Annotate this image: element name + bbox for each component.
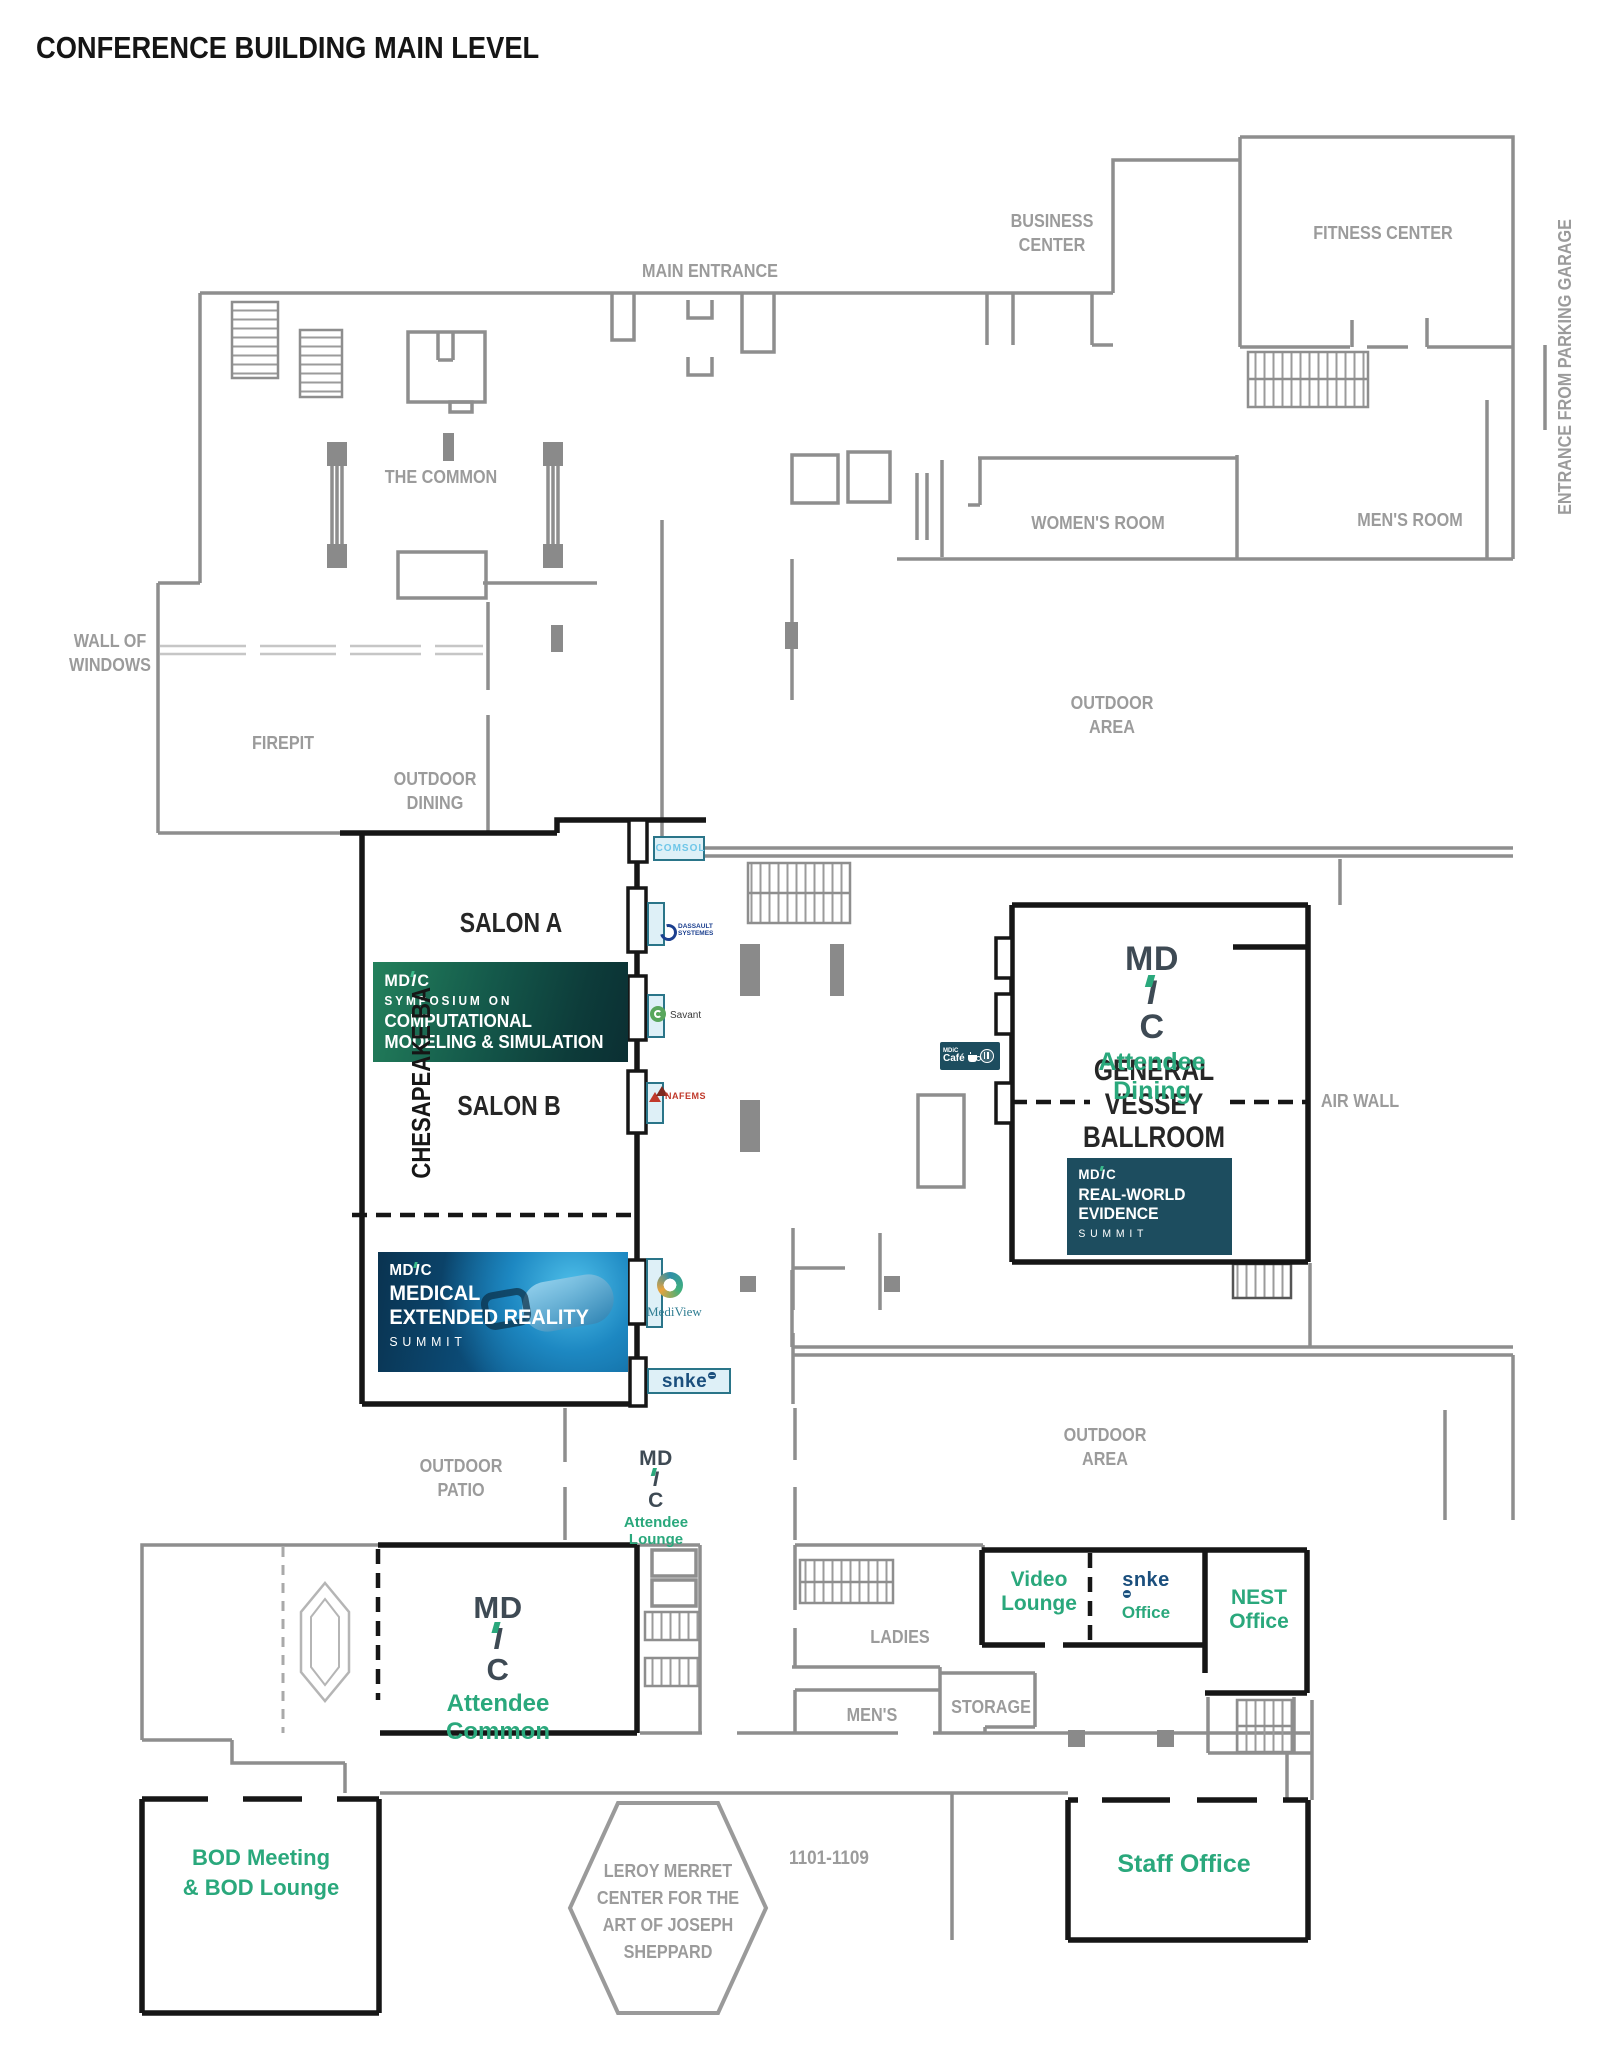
label-salon-a: SALON A bbox=[460, 905, 562, 942]
comsol-text: COMSOL bbox=[656, 843, 706, 854]
mxr-banner: MDIC MEDICAL EXTENDED REALITY SUMMIT bbox=[378, 1252, 628, 1372]
window-wall bbox=[160, 640, 483, 658]
coffee-cup-icon bbox=[968, 1055, 977, 1062]
mxr-line2: EXTENDED REALITY bbox=[389, 1306, 615, 1330]
mediview-text: MediView bbox=[647, 1305, 702, 1319]
label-salon-b: SALON B bbox=[457, 1088, 560, 1125]
label-wall-of-windows: WALL OFWINDOWS bbox=[69, 630, 151, 678]
snke-text: snke bbox=[1122, 1570, 1170, 1598]
mdic-cafe-badge: MDiC Café bbox=[940, 1042, 1000, 1070]
snke-logo: snke bbox=[647, 1368, 731, 1394]
floor-plan-canvas: CONFERENCE BUILDING MAIN LEVEL MDIC SYMP… bbox=[0, 0, 1614, 2048]
snke-text: snke bbox=[662, 1372, 716, 1391]
rwe-line3: SUMMIT bbox=[1078, 1228, 1223, 1240]
label-storage: STORAGE bbox=[951, 1696, 1031, 1720]
label-main-entrance: MAIN ENTRANCE bbox=[642, 260, 778, 284]
label-1101-1109: 1101-1109 bbox=[789, 1846, 869, 1871]
dassault-logo-box bbox=[647, 902, 665, 946]
room-attendee-dining: MDIC Attendee Dining bbox=[1099, 942, 1206, 1106]
label-outdoor-area-north: OUTDOORAREA bbox=[1071, 692, 1154, 740]
label-ladies: LADIES bbox=[870, 1626, 929, 1650]
mdic-logo: MDIC bbox=[624, 1448, 688, 1511]
rwe-banner: MDIC REAL-WORLD EVIDENCE SUMMIT bbox=[1067, 1158, 1232, 1255]
label-outdoor-dining: OUTDOORDINING bbox=[394, 768, 477, 816]
savant-icon bbox=[650, 1006, 666, 1022]
cafe-label: Café bbox=[943, 1054, 965, 1064]
room-video-lounge: VideoLounge bbox=[1001, 1568, 1077, 1616]
nafems-text: NAFEMS bbox=[665, 1092, 706, 1101]
mxr-line1: MEDICAL bbox=[389, 1282, 615, 1306]
comsol-logo: COMSOL bbox=[653, 836, 705, 861]
label-mens: MEN'S bbox=[847, 1704, 898, 1728]
label-the-common: THE COMMON bbox=[385, 466, 498, 490]
room-attendee-lounge: MDIC Attendee Lounge bbox=[624, 1448, 688, 1548]
mdic-logo: MDIC bbox=[389, 1263, 432, 1279]
room-snke-office: snke Office bbox=[1122, 1570, 1170, 1623]
gray-walls-upper bbox=[158, 137, 1545, 905]
mdic-logo: MDIC bbox=[1099, 942, 1206, 1044]
label-womens-room: WOMEN'S ROOM bbox=[1031, 512, 1164, 536]
dassault-text: DASSAULT SYSTEMES bbox=[678, 924, 713, 938]
room-staff-office: Staff Office bbox=[1117, 1850, 1250, 1879]
label-leroy-merret-center: LEROY MERRETCENTER FOR THE ART OF JOSEPH… bbox=[597, 1858, 739, 1966]
label-fitness-center: FITNESS CENTER bbox=[1313, 222, 1453, 246]
label-parking-entrance: ENTRANCE FROM PARKING GARAGE bbox=[1554, 219, 1578, 515]
room-attendee-common: MDIC Attendee Common bbox=[446, 1592, 550, 1746]
label-outdoor-patio: OUTDOORPATIO bbox=[420, 1455, 503, 1503]
mediview-swirl-icon bbox=[657, 1272, 683, 1298]
page-title: CONFERENCE BUILDING MAIN LEVEL bbox=[36, 30, 539, 66]
label-outdoor-area-south: OUTDOORAREA bbox=[1064, 1424, 1147, 1472]
room-nest-office: NESTOffice bbox=[1229, 1586, 1289, 1634]
room-bod-meeting-lounge: BOD Meeting& BOD Lounge bbox=[183, 1843, 339, 1902]
mdic-logo: MDIC bbox=[1078, 1167, 1116, 1181]
rwe-line2: EVIDENCE bbox=[1078, 1205, 1223, 1224]
label-firepit: FIREPIT bbox=[252, 732, 314, 756]
label-business-center: BUSINESSCENTER bbox=[1011, 210, 1094, 258]
mxr-line3: SUMMIT bbox=[389, 1334, 615, 1349]
mdic-logo: MDIC bbox=[446, 1592, 550, 1685]
snke-globe-icon bbox=[1123, 1590, 1131, 1598]
label-mens-room: MEN'S ROOM bbox=[1357, 509, 1463, 533]
floor-plan-walls bbox=[0, 0, 1614, 2048]
label-air-wall: AIR WALL bbox=[1321, 1090, 1399, 1114]
rwe-line1: REAL-WORLD bbox=[1078, 1186, 1223, 1205]
savant-text: Savant bbox=[670, 1011, 701, 1022]
cutlery-icon bbox=[980, 1049, 994, 1063]
snke-globe-icon bbox=[708, 1372, 716, 1380]
label-chesapeake-ballroom: CHESAPEAKE BA bbox=[404, 987, 438, 1179]
